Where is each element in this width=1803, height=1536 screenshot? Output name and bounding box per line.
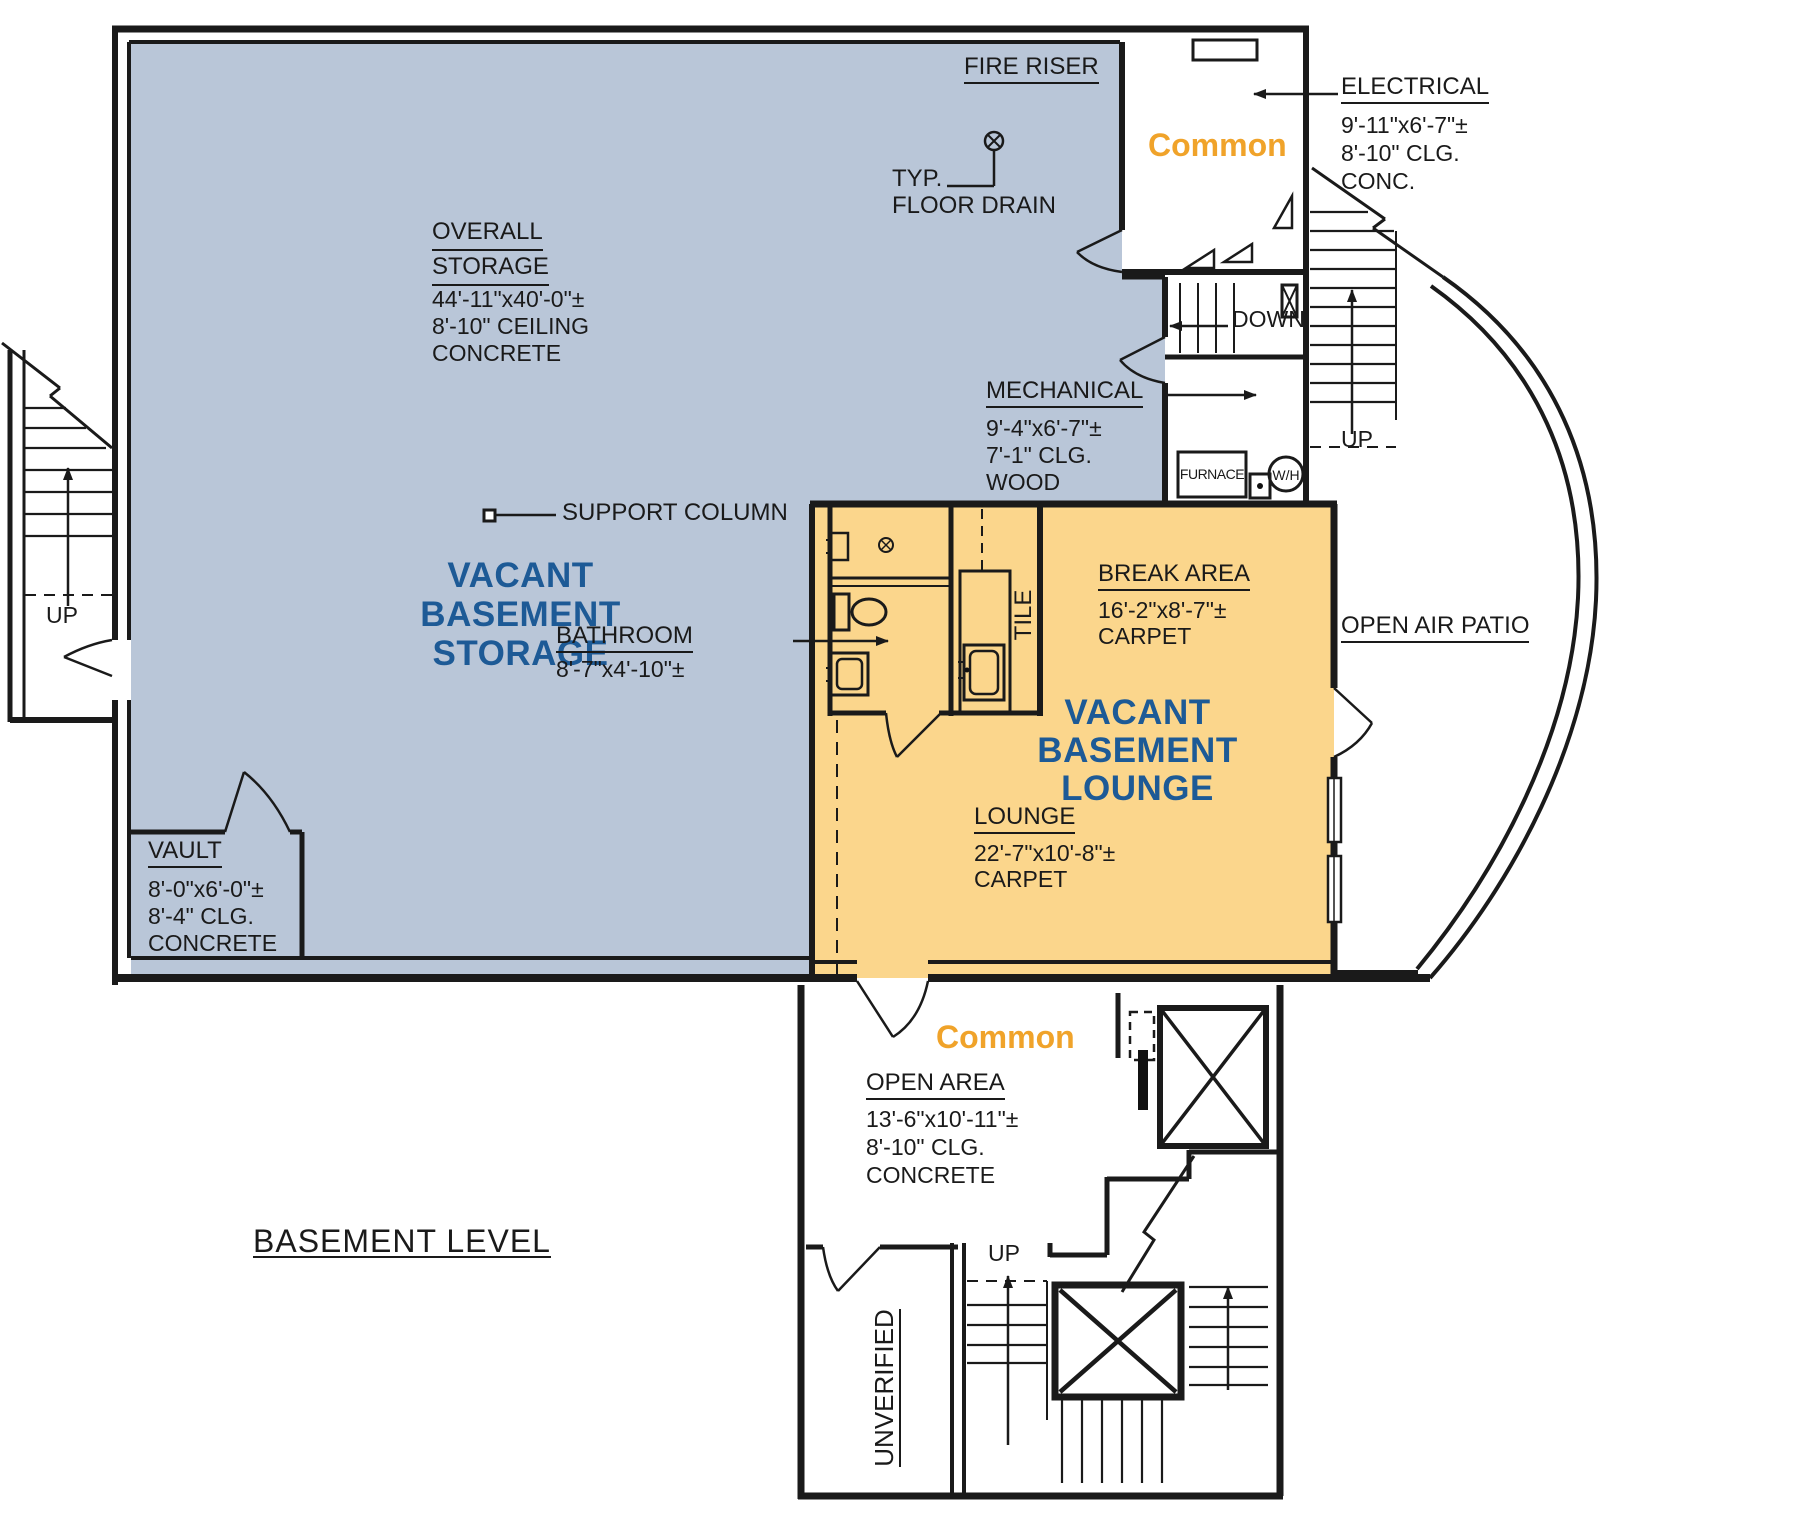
up-label-top-right: UP [1341,426,1373,452]
open-area-label: OPEN AREA [866,1070,1005,1100]
floorplan-drawing [0,0,1803,1536]
electrical-panel [1193,40,1257,60]
floorplan-page: FIRE RISER TYP. FLOOR DRAIN OVERALL STOR… [0,0,1803,1536]
stairs-top-right [1310,168,1443,447]
open-area-dims: 13'-6"x10'-11"± 8'-10" CLG. CONCRETE [866,1105,1018,1189]
typ-label: TYP. [892,166,942,192]
up-label-left: UP [46,602,78,628]
bathroom-dims: 8'-7"x4'-10"± [556,656,685,683]
unverified-label: UNVERIFIED [871,1303,901,1473]
elevator-shaft [1130,1008,1266,1146]
break-area-dims: 16'-2"x8'-7"± CARPET [1098,597,1227,649]
support-column-label: SUPPORT COLUMN [562,500,788,526]
overall-storage-dims: 44'-11"x40'-0"± 8'-10" CEILING CONCRETE [432,286,589,367]
overall-storage-label: OVERALL STORAGE [432,216,549,286]
up-label-bottom: UP [988,1240,1020,1266]
furnace-label: FURNACE [1178,466,1246,482]
stairs-bottom [967,1156,1268,1483]
open-air-patio-label: OPEN AIR PATIO [1341,613,1529,643]
electrical-label: ELECTRICAL [1341,74,1489,104]
break-area-label: BREAK AREA [1098,561,1250,591]
electrical-dims: 9'-11"x6'-7"± 8'-10" CLG. CONC. [1341,111,1468,195]
water-heater-label: W/H [1270,467,1302,483]
stairs-left [2,343,112,722]
common-label-top: Common [1148,128,1287,162]
vault-dims: 8'-0"x6'-0"± 8'-4" CLG. CONCRETE [148,876,277,957]
vault-label: VAULT [148,838,222,868]
down-label: DOWN [1232,306,1305,332]
mechanical-label: MECHANICAL [986,378,1143,408]
mechanical-dims: 9'-4"x6'-7"± 7'-1" CLG. WOOD [986,415,1102,496]
lounge-label: LOUNGE [974,804,1075,834]
page-title: BASEMENT LEVEL [253,1228,551,1258]
lounge-room-name: VACANT BASEMENT LOUNGE [1010,694,1265,808]
tile-label: TILE [1011,585,1037,645]
floor-drain-label: FLOOR DRAIN [892,193,1056,219]
fire-riser-label: FIRE RISER [964,54,1099,84]
lounge-dims: 22'-7"x10'-8"± CARPET [974,840,1115,892]
common-label-bottom: Common [936,1020,1075,1054]
bathroom-label: BATHROOM [556,623,693,653]
